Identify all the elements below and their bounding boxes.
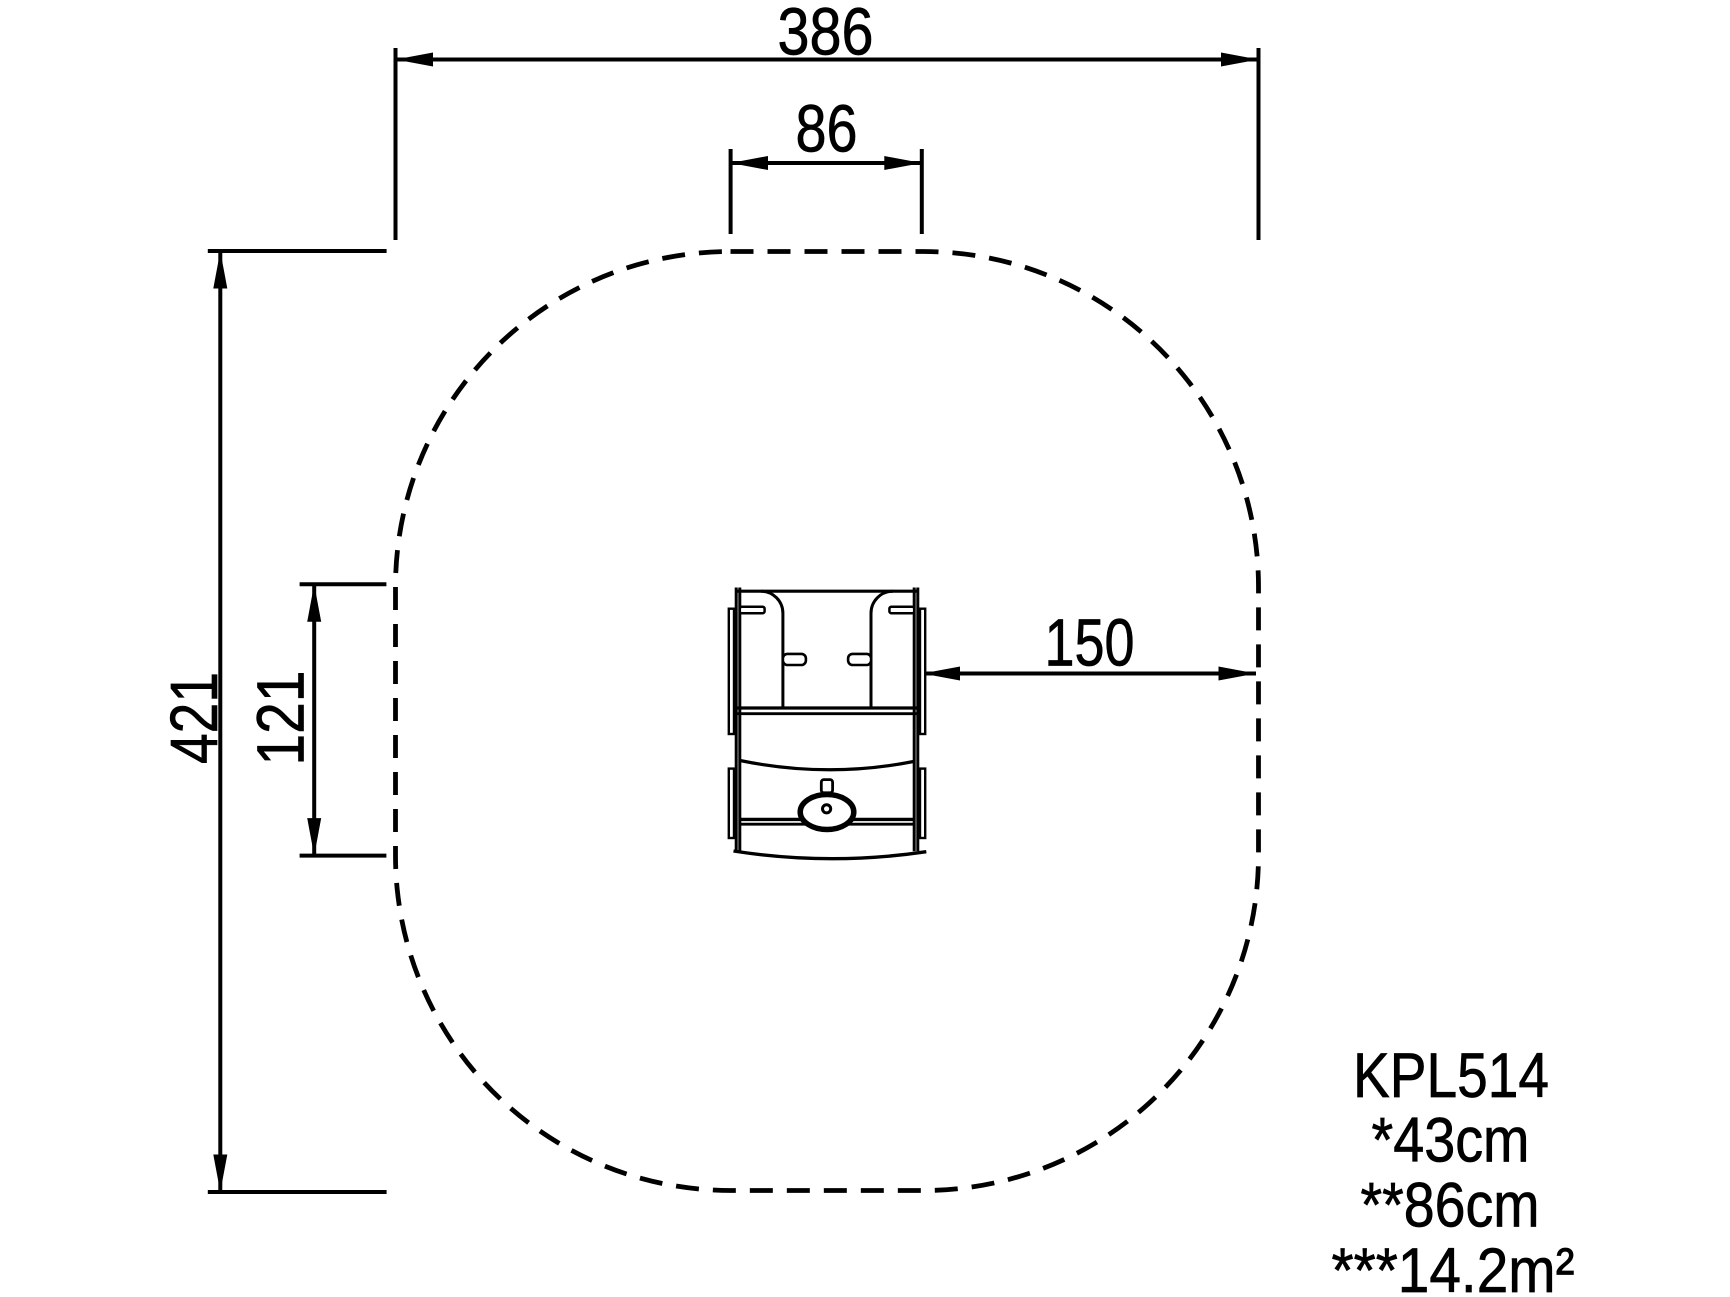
svg-text:*43cm: *43cm xyxy=(1372,1106,1530,1176)
svg-text:386: 386 xyxy=(778,0,874,70)
svg-text:150: 150 xyxy=(1045,606,1135,681)
svg-text:***14.2m²: ***14.2m² xyxy=(1332,1236,1575,1297)
svg-text:121: 121 xyxy=(244,671,319,766)
svg-text:86: 86 xyxy=(796,92,858,167)
svg-text:**86cm: **86cm xyxy=(1361,1170,1540,1240)
svg-text:KPL514: KPL514 xyxy=(1353,1041,1549,1111)
svg-text:421: 421 xyxy=(157,672,232,764)
